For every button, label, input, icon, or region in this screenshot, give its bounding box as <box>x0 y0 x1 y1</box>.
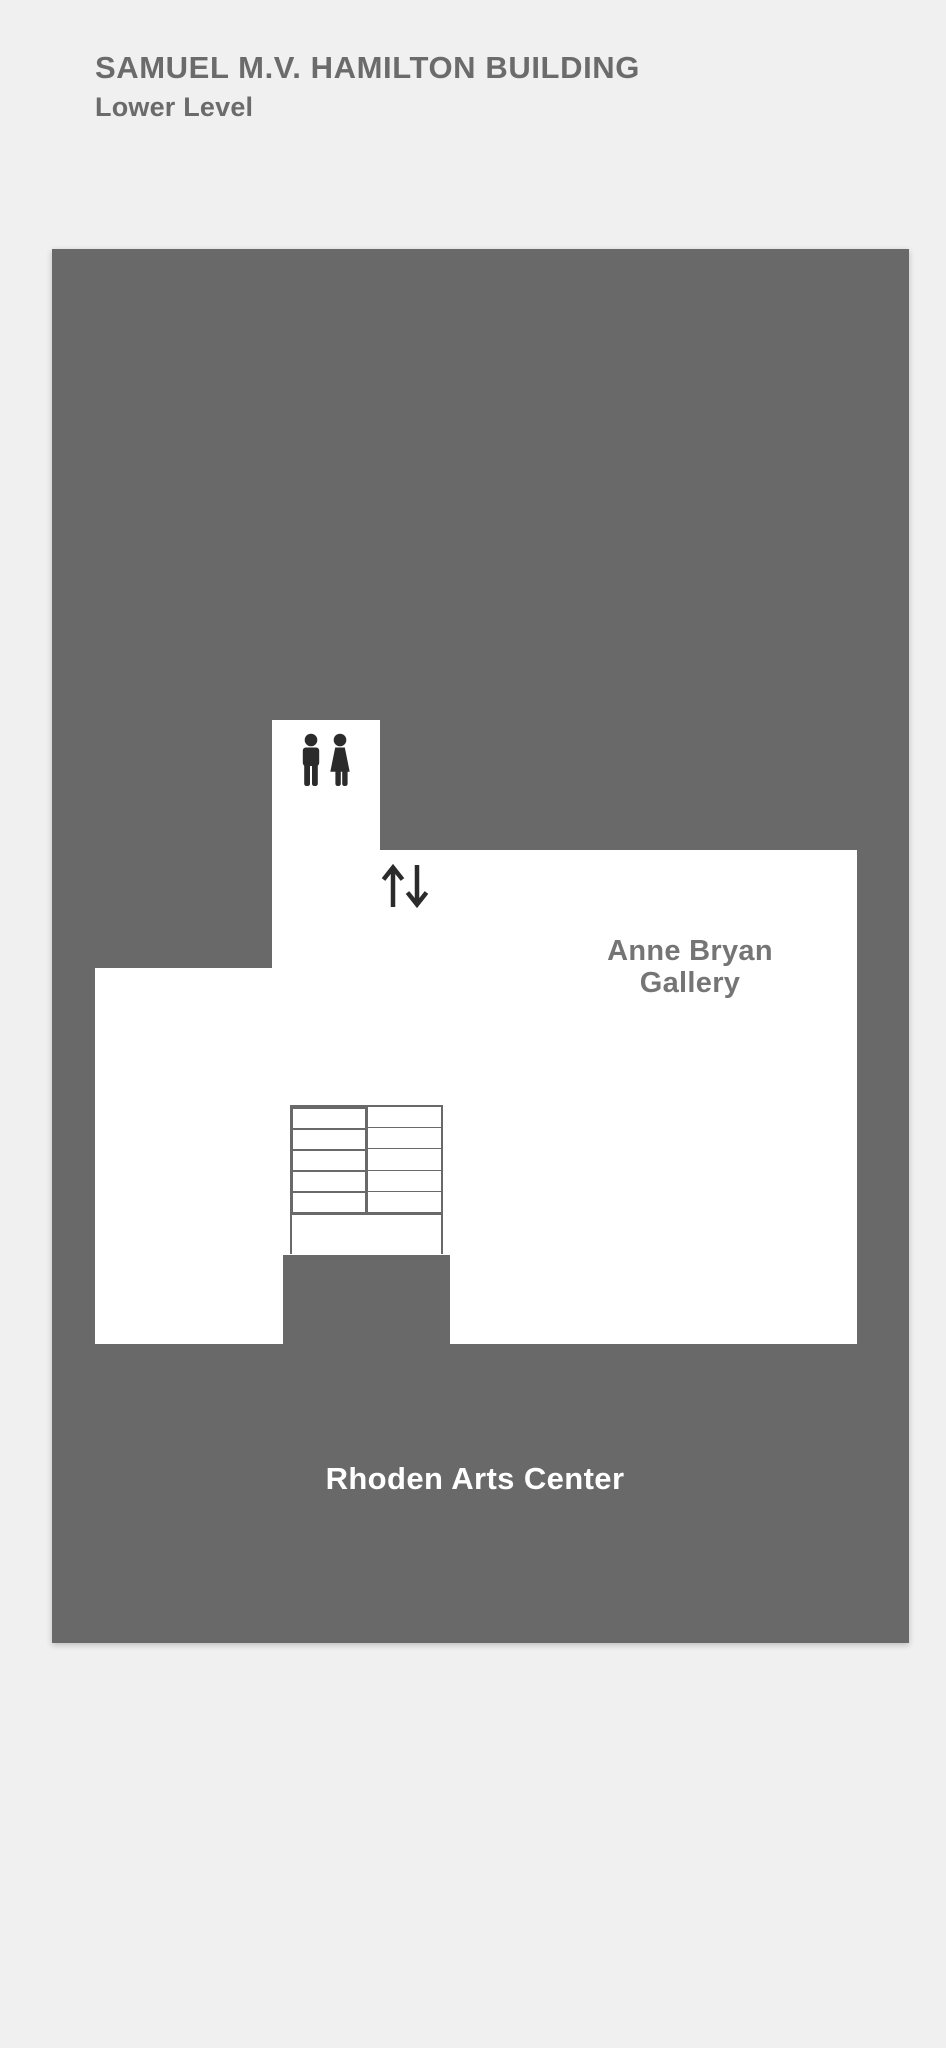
floor-area-anne-bryan-gallery <box>380 850 857 1344</box>
stair-tread <box>293 1149 365 1170</box>
stair-tread <box>368 1191 441 1212</box>
floor-area-left-wing <box>95 968 273 1344</box>
staircase <box>290 1105 443 1254</box>
stair-flights <box>290 1105 443 1212</box>
floorplan-building-footprint: Anne Bryan Gallery Rhoden Arts Center <box>52 249 909 1643</box>
stair-tread <box>293 1170 365 1191</box>
stair-tread <box>293 1109 365 1128</box>
stair-landing <box>290 1215 443 1254</box>
stair-tread <box>368 1148 441 1169</box>
down-arrow-icon <box>408 865 427 905</box>
stair-flight-up <box>290 1105 368 1212</box>
man-figure <box>303 734 319 786</box>
stair-flight-down <box>368 1105 443 1212</box>
up-arrow-icon <box>384 868 403 908</box>
rhoden-arts-center-label: Rhoden Arts Center <box>324 1461 626 1497</box>
woman-figure <box>330 734 349 786</box>
stair-tread <box>368 1107 441 1127</box>
stair-tread <box>293 1191 365 1212</box>
restroom-men-women-icon <box>298 733 354 791</box>
building-title: SAMUEL M.V. HAMILTON BUILDING <box>95 50 640 86</box>
page-root: { "header": { "title": "SAMUEL M.V. HAMI… <box>0 0 946 2048</box>
map-header: SAMUEL M.V. HAMILTON BUILDING Lower Leve… <box>95 50 640 123</box>
stair-tread <box>293 1128 365 1149</box>
stair-tread <box>368 1127 441 1148</box>
gallery-label-line1: Anne Bryan <box>568 935 812 967</box>
stair-well-block <box>283 1255 450 1344</box>
floor-level-subtitle: Lower Level <box>95 92 640 123</box>
gallery-label-line2: Gallery <box>568 967 812 999</box>
stair-tread <box>368 1170 441 1191</box>
anne-bryan-gallery-label: Anne Bryan Gallery <box>568 935 812 999</box>
elevator-up-down-arrows-icon <box>379 862 431 910</box>
